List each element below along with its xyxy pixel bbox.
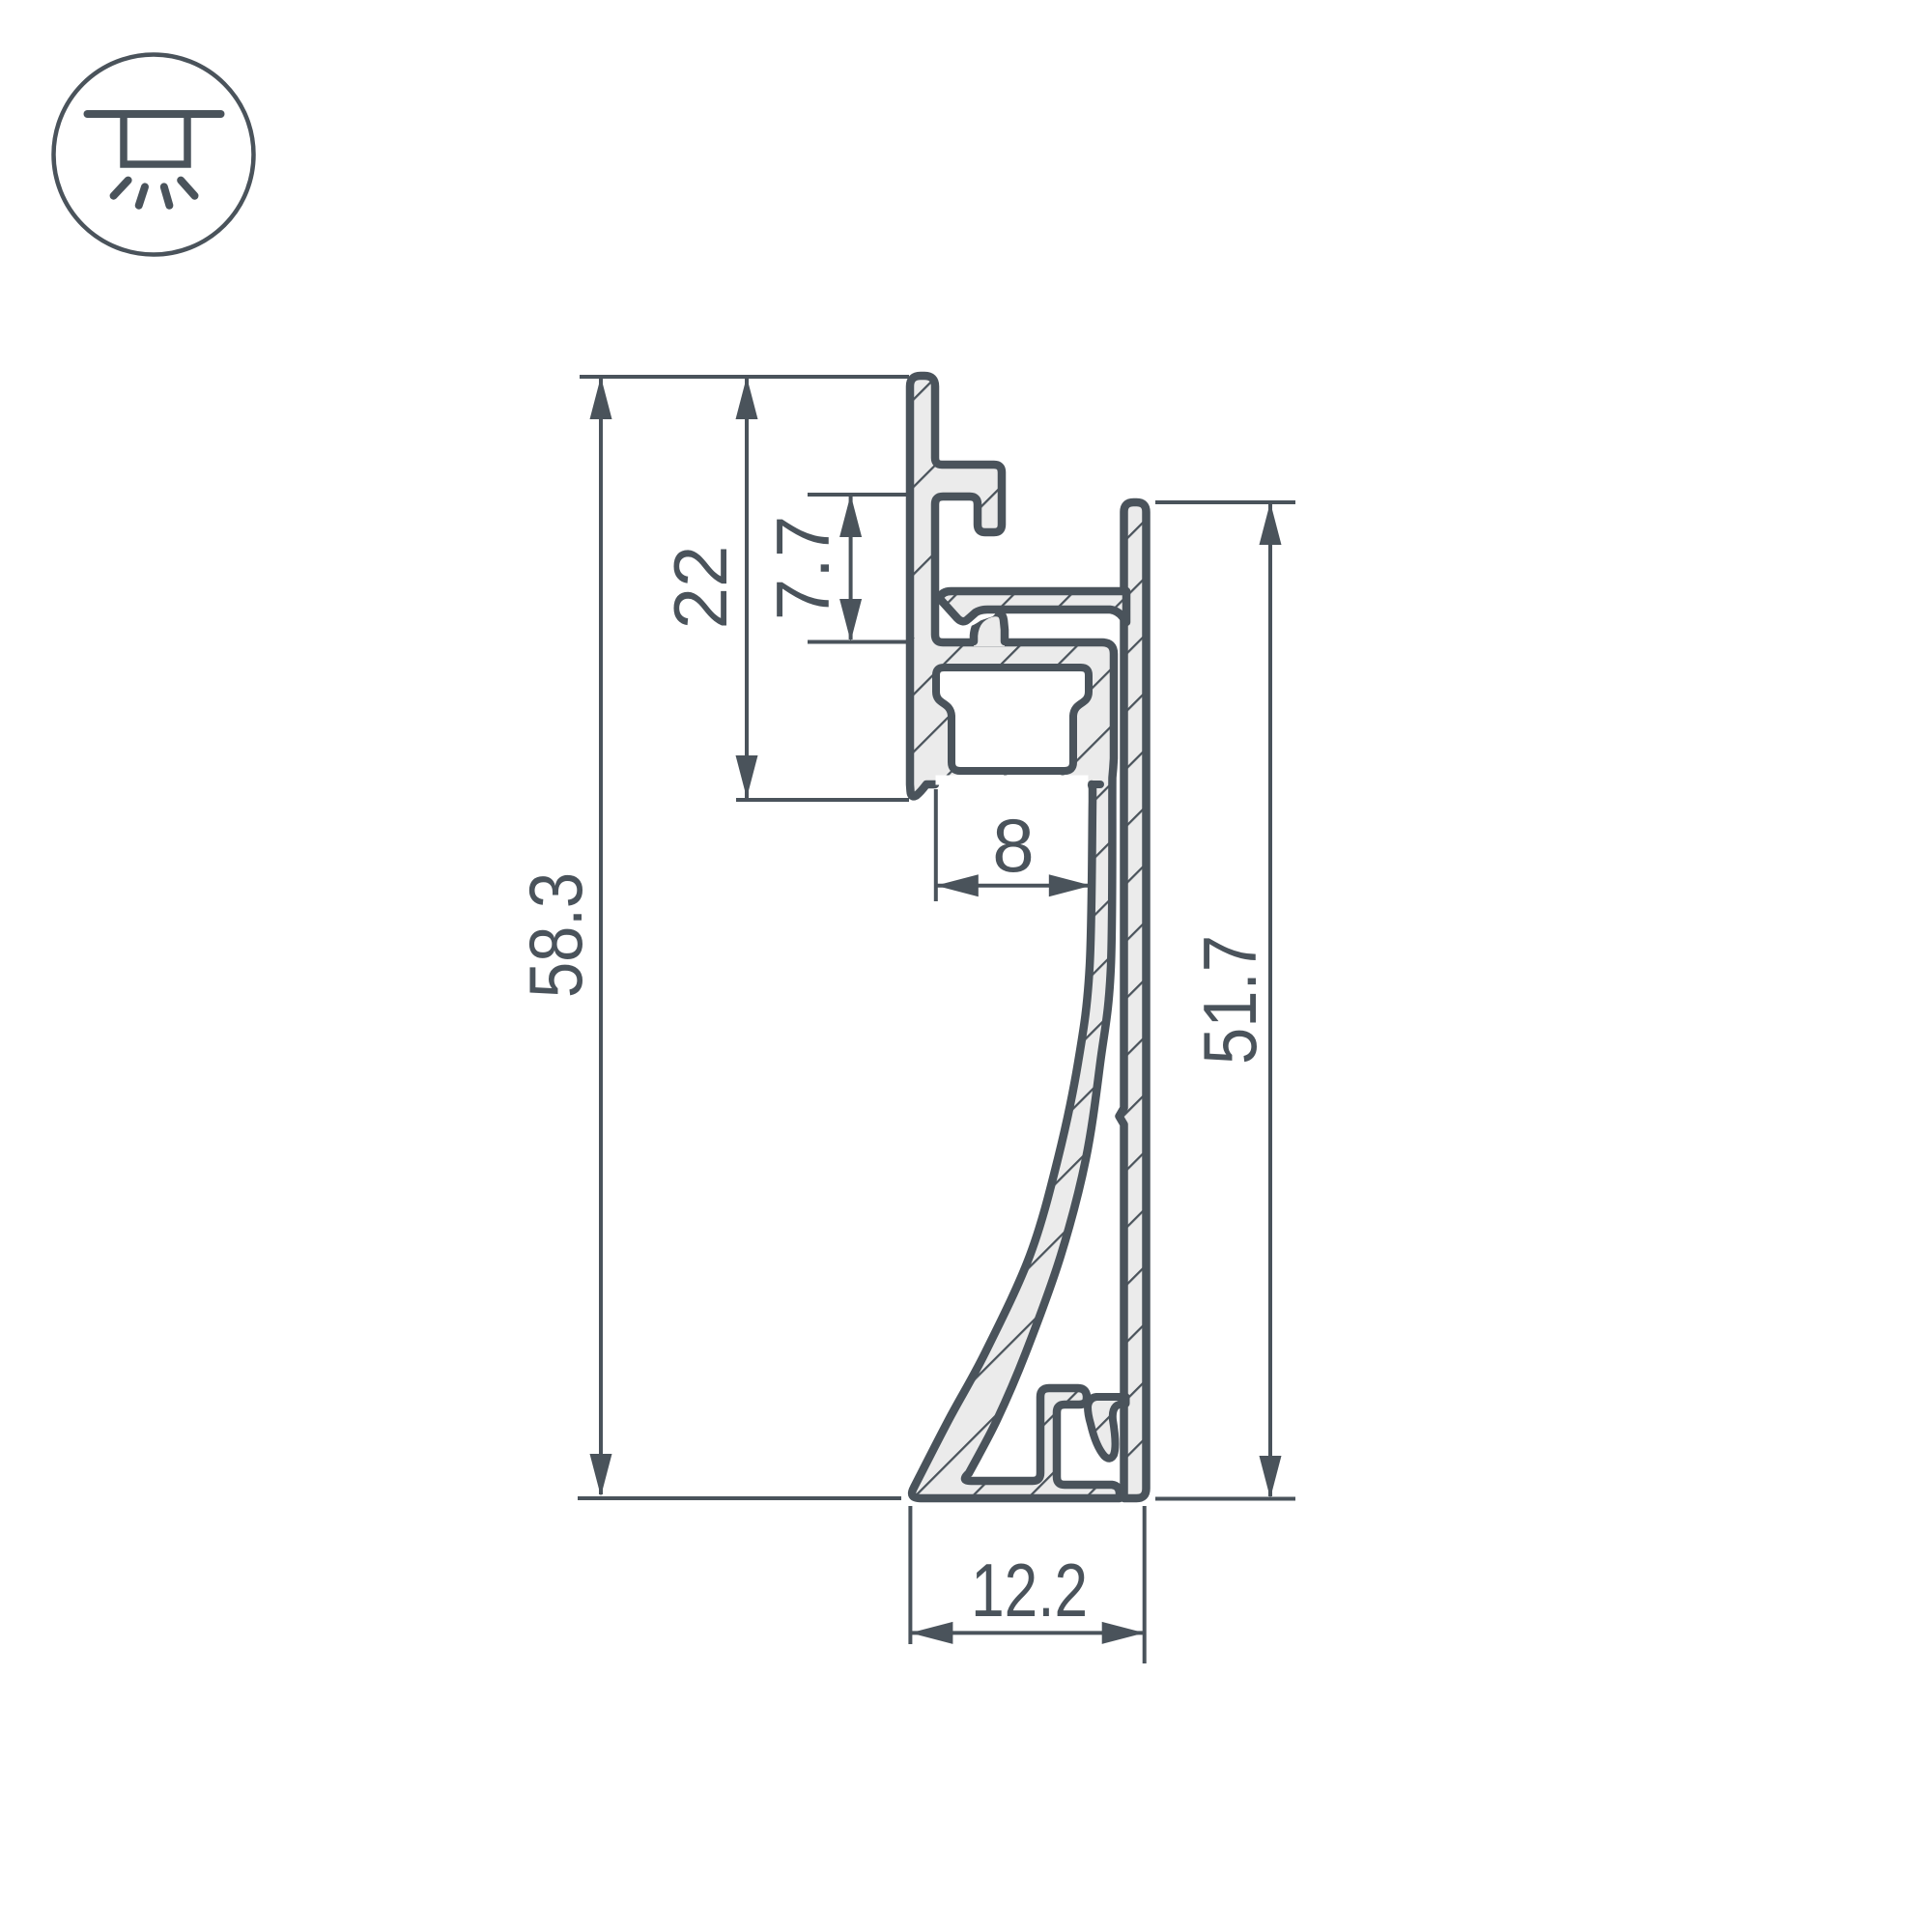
svg-text:8: 8 [992, 803, 1034, 888]
svg-text:12.2: 12.2 [971, 1548, 1088, 1633]
svg-text:22: 22 [658, 546, 743, 630]
svg-text:51.7: 51.7 [1187, 935, 1272, 1065]
svg-text:7.7: 7.7 [760, 516, 845, 620]
svg-text:58.3: 58.3 [513, 872, 598, 998]
